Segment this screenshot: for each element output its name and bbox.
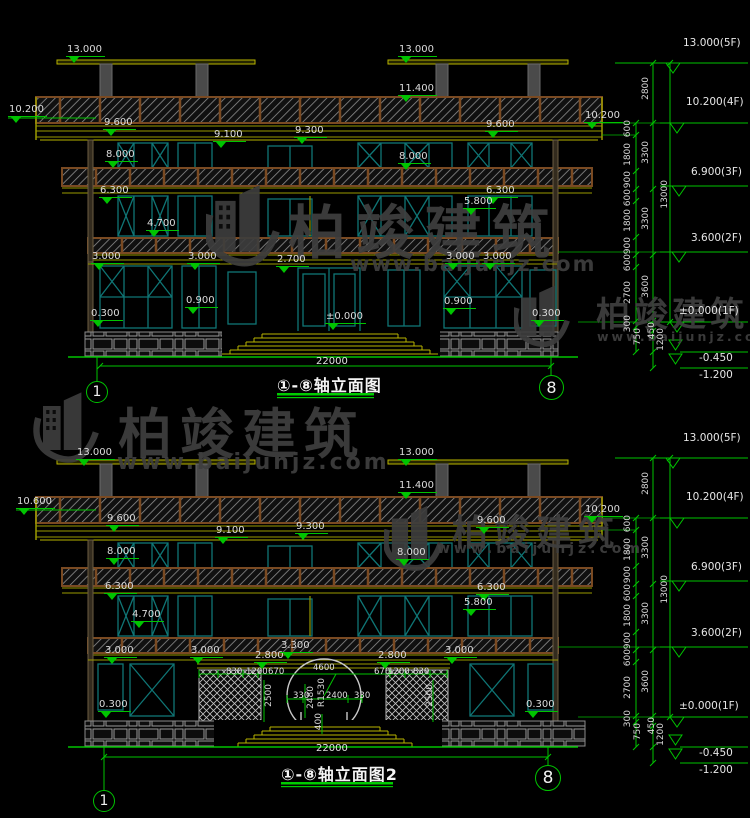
- level-label: -1.200: [699, 370, 733, 381]
- elevation-label: 11.400: [398, 480, 437, 499]
- vertical-dim: 1800: [623, 604, 633, 627]
- detail-dim: 830: [226, 668, 242, 677]
- vertical-dim: 3300: [641, 536, 651, 559]
- elevation-label: 13.000: [66, 44, 105, 63]
- elevation-label: 13.000: [76, 447, 115, 466]
- level-label: 3.600(2F): [691, 628, 742, 639]
- elevation-label: 3.000: [445, 251, 478, 270]
- vertical-dim: 900: [623, 566, 633, 583]
- vertical-dim: 1800: [623, 143, 633, 166]
- elevation-label: 2.700: [276, 254, 309, 273]
- detail-dim: 670: [268, 668, 284, 677]
- vertical-dim: 1200: [656, 328, 666, 351]
- vertical-dim: 300: [623, 315, 633, 332]
- detail-dim-radius: R1530: [317, 678, 327, 707]
- elevation-label: 9.600: [103, 117, 136, 136]
- vertical-dim: 13000: [660, 180, 670, 209]
- detail-dim: 1200: [388, 668, 410, 677]
- vertical-dim: 13000: [660, 575, 670, 604]
- elevation-label: 5.800: [463, 597, 496, 616]
- elevation-label: 0.300: [525, 699, 558, 718]
- axis-bubble-1: 1: [93, 790, 115, 812]
- level-label: 6.900(3F): [691, 167, 742, 178]
- elevation-label: 8.000: [396, 547, 429, 566]
- elevation-label: 5.800: [463, 196, 496, 215]
- level-label: 13.000(5F): [683, 433, 741, 444]
- level-label: 3.600(2F): [691, 233, 742, 244]
- detail-dim: 400: [314, 713, 324, 730]
- axis-bubble-8: 8: [539, 375, 564, 400]
- elevation-label: 0.300: [531, 308, 564, 327]
- vertical-dim: 2800: [641, 472, 651, 495]
- detail-dim: 4600: [313, 664, 335, 673]
- watermark-url: www.baijunjz.com: [597, 329, 750, 344]
- vertical-dim: 900: [623, 171, 633, 188]
- elevation-label: 3.000: [482, 251, 515, 270]
- watermark-url: www.baijunjz.com: [117, 450, 390, 475]
- vertical-dim: 3300: [641, 207, 651, 230]
- elevation-label: 9.100: [215, 525, 248, 544]
- detail-dim: 330: [354, 692, 370, 701]
- overall-width-dimension: 22000: [316, 743, 348, 754]
- elevation-label: 3.000: [187, 251, 220, 270]
- axis-bubble-1: 1: [86, 381, 108, 403]
- vertical-dim: 900: [623, 237, 633, 254]
- vertical-dim: 2700: [623, 676, 633, 699]
- level-label: 13.000(5F): [683, 38, 741, 49]
- elevation-label: 3.300: [280, 640, 313, 659]
- vertical-dim: 2700: [623, 281, 633, 304]
- elevation-label: 4.700: [131, 609, 164, 628]
- elevation-label: 9.600: [106, 513, 139, 532]
- elevation-label: 10.200: [584, 504, 623, 523]
- lattice-pier-left: [199, 670, 261, 722]
- detail-dim: 2480: [306, 686, 316, 709]
- elevation-label: ±0.000: [325, 311, 366, 330]
- elevation-label: 11.400: [398, 83, 437, 102]
- detail-dim: 830: [413, 668, 429, 677]
- elevation-label: 9.600: [485, 119, 518, 138]
- elevation-label: 8.000: [106, 546, 139, 565]
- elevation-label: 8.000: [105, 149, 138, 168]
- elevation-label: 13.000: [398, 44, 437, 63]
- elevation-label: 9.600: [476, 515, 509, 534]
- elevation-label: 9.300: [294, 125, 327, 144]
- level-label: -0.450: [699, 353, 733, 364]
- d1-title: ①-⑧轴立面图: [277, 372, 382, 396]
- vertical-dim: 3600: [641, 275, 651, 298]
- level-label: -1.200: [699, 765, 733, 776]
- elevation-label: 3.000: [190, 645, 223, 664]
- vertical-dim: 600: [623, 649, 633, 666]
- elevation-label: 10.200: [8, 104, 47, 123]
- vertical-dim: 600: [623, 254, 633, 271]
- vertical-dim: 600: [623, 515, 633, 532]
- vertical-dim: 300: [623, 710, 633, 727]
- elevation-label: 0.300: [90, 308, 123, 327]
- watermark-url: www.baijunjz.com: [437, 541, 644, 557]
- elevation-label: 3.000: [104, 645, 137, 664]
- elevation-label: 9.100: [213, 129, 246, 148]
- vertical-dim: 3300: [641, 141, 651, 164]
- elevation-label: 13.000: [398, 447, 437, 466]
- level-label: ±0.000(1F): [679, 701, 739, 712]
- level-label: ±0.000(1F): [679, 306, 739, 317]
- level-label: 10.200(4F): [686, 492, 744, 503]
- elevation-label: 10.600: [16, 496, 55, 515]
- level-label: -0.450: [699, 748, 733, 759]
- vertical-dim: 3600: [641, 670, 651, 693]
- vertical-dim: 1800: [623, 538, 633, 561]
- elevation-label: 3.000: [91, 251, 124, 270]
- detail-dim: 1200: [246, 668, 268, 677]
- vertical-dim: 750: [633, 328, 643, 345]
- elevation-label: 0.900: [443, 296, 476, 315]
- vertical-dim: 600: [623, 120, 633, 137]
- lattice-pier-right: [386, 670, 448, 722]
- level-label: 10.200(4F): [686, 97, 744, 108]
- elevation-label: 4.700: [146, 218, 179, 237]
- vertical-dim: 2800: [641, 77, 651, 100]
- elevation-label: 8.000: [398, 151, 431, 170]
- axis-bubble-8: 8: [535, 765, 561, 791]
- vertical-dim: 900: [623, 632, 633, 649]
- vertical-dim: 600: [623, 584, 633, 601]
- overall-width-dimension: 22000: [316, 356, 348, 367]
- detail-dim: 2400: [326, 692, 348, 701]
- elevation-label: 0.300: [98, 699, 131, 718]
- elevation-label: 6.300: [99, 185, 132, 204]
- vertical-dim: 1200: [656, 723, 666, 746]
- elevation-label: 3.000: [444, 645, 477, 664]
- detail-dim: 2500: [425, 684, 435, 707]
- vertical-dim: 750: [633, 723, 643, 740]
- elevation-label: 9.300: [295, 521, 328, 540]
- elevation-label: 10.200: [584, 110, 623, 129]
- cad-canvas: 13.000 13.000 11.400 10.200 10.200 9.600…: [0, 0, 750, 818]
- detail-dim: 2500: [264, 684, 274, 707]
- vertical-dim: 1800: [623, 209, 633, 232]
- elevation-label: 0.900: [185, 295, 218, 314]
- vertical-dim: 3300: [641, 602, 651, 625]
- elevation-label: 6.300: [104, 581, 137, 600]
- d2-title: ①-⑧轴立面图2: [281, 761, 398, 785]
- level-label: 6.900(3F): [691, 562, 742, 573]
- vertical-dim: 600: [623, 189, 633, 206]
